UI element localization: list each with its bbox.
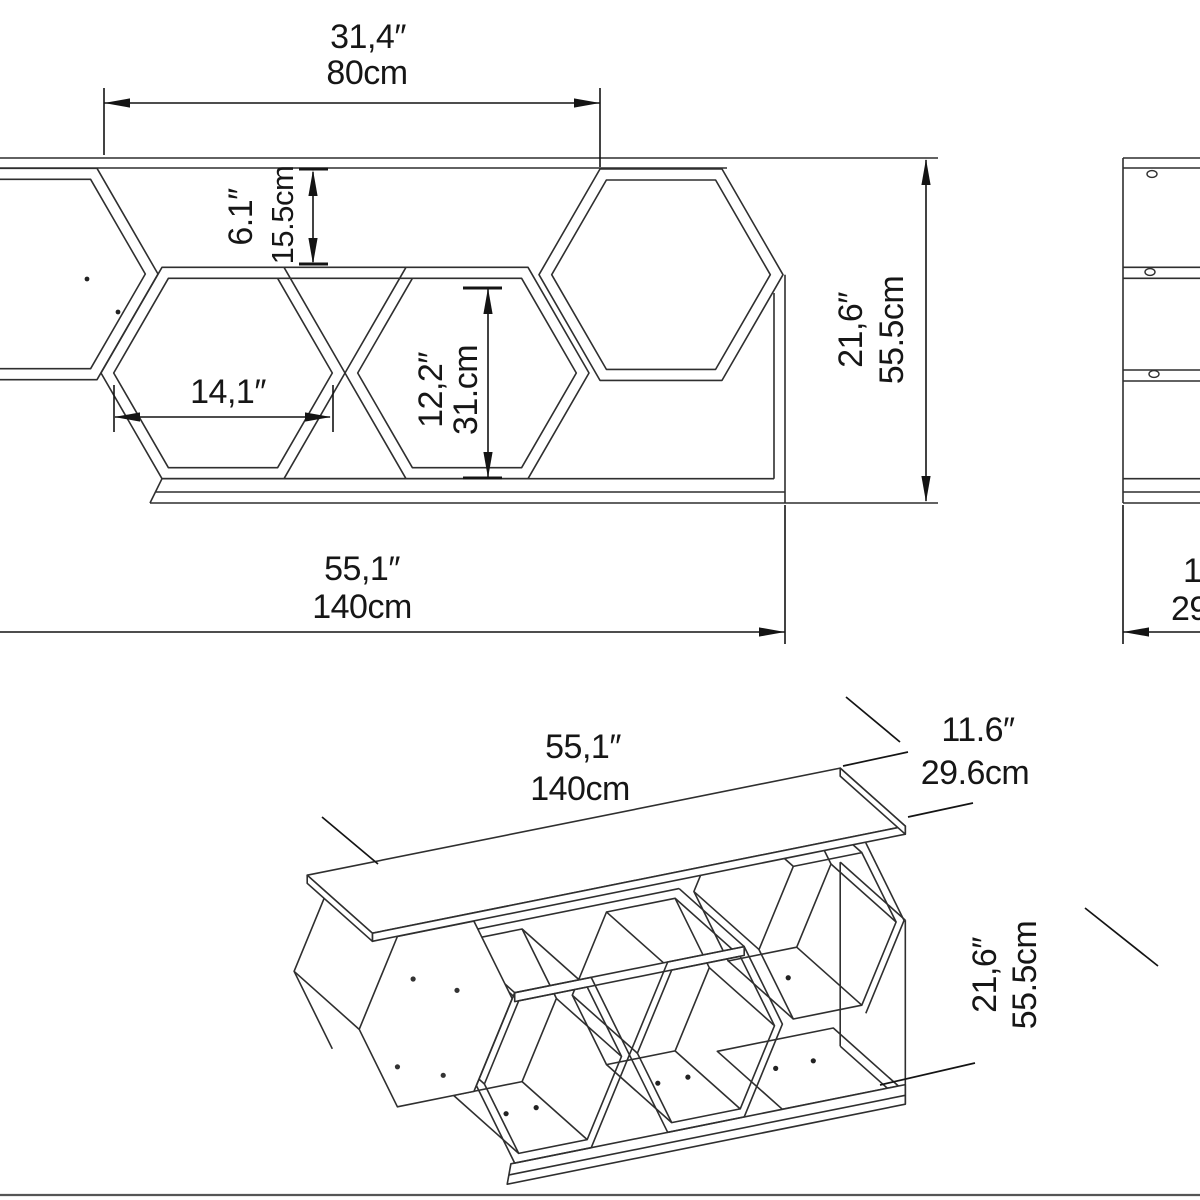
front-dim-hex-height-cm: 31.cm	[447, 345, 485, 435]
front-dim-upper-gap-inches: 6.1″	[222, 188, 260, 246]
side-dim-depth-cm: 29.6cm	[1171, 590, 1200, 628]
front-dim-top-opening-inches: 31,4″	[330, 18, 406, 56]
iso-dim-depth-cm: 29.6cm	[921, 754, 1030, 792]
side-view-drawing	[1123, 158, 1200, 503]
front-dim-hex-height-inches: 12,2″	[412, 352, 450, 428]
front-dim-height-inches: 21,6″	[832, 292, 870, 368]
drawing-canvas: 31,4″ 80cm 6.1″ 15.5cm 14,1″ 12,2″ 31.cm…	[0, 0, 1200, 1200]
front-dim-upper-gap-cm: 15.5cm	[265, 166, 300, 265]
side-dim-depth-inches: 11.6″	[1183, 552, 1200, 590]
iso-dim-width-cm: 140cm	[530, 770, 630, 808]
front-view-drawing	[0, 158, 938, 503]
iso-dim-height-inches: 21,6″	[966, 937, 1004, 1013]
front-dim-hex-width-inches: 14,1″	[190, 373, 266, 411]
iso-dim-height-cm: 55.5cm	[1006, 921, 1044, 1030]
front-dim-height-cm: 55.5cm	[873, 276, 911, 385]
iso-dim-depth-inches: 11.6″	[941, 711, 1015, 749]
front-dim-width-cm: 140cm	[312, 588, 412, 626]
front-dim-top-opening-cm: 80cm	[326, 54, 407, 92]
technical-drawing-sheet: 31,4″ 80cm 6.1″ 15.5cm 14,1″ 12,2″ 31.cm…	[0, 0, 1200, 1200]
iso-dim-width-inches: 55,1″	[545, 728, 621, 766]
front-dim-width-inches: 55,1″	[324, 550, 400, 588]
